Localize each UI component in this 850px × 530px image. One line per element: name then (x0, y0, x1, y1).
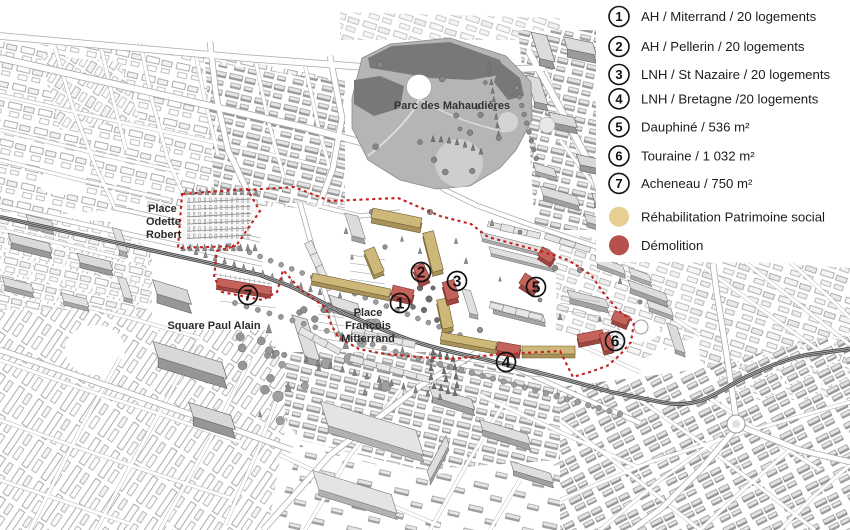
svg-text:Acheneau / 750 m²: Acheneau / 750 m² (641, 176, 753, 191)
svg-text:Odette: Odette (146, 216, 181, 228)
svg-text:5: 5 (615, 119, 622, 134)
svg-text:1: 1 (396, 296, 405, 313)
svg-text:2: 2 (417, 265, 426, 282)
svg-text:Robert: Robert (146, 229, 182, 241)
svg-text:1: 1 (615, 9, 622, 24)
svg-text:LNH / St Nazaire / 20 logement: LNH / St Nazaire / 20 logements (641, 67, 831, 82)
svg-text:AH / Pellerin / 20 logements: AH / Pellerin / 20 logements (641, 39, 805, 54)
svg-text:Réhabilitation Patrimoine soci: Réhabilitation Patrimoine social (641, 209, 825, 224)
svg-text:4: 4 (502, 355, 511, 372)
svg-text:7: 7 (615, 176, 622, 191)
svg-text:AH / Miterrand / 20 logements: AH / Miterrand / 20 logements (641, 9, 817, 24)
svg-text:3: 3 (615, 67, 622, 82)
svg-text:Dauphiné / 536 m²: Dauphiné / 536 m² (641, 119, 750, 134)
svg-text:5: 5 (532, 280, 541, 297)
svg-text:Touraine / 1 032 m²: Touraine / 1 032 m² (641, 149, 755, 164)
svg-text:6: 6 (611, 334, 620, 351)
svg-text:Square Paul Alain: Square Paul Alain (167, 320, 260, 332)
svg-text:Parc des Mahaudières: Parc des Mahaudières (394, 100, 510, 112)
svg-text:Place: Place (354, 307, 383, 319)
svg-text:LNH / Bretagne /20 logements: LNH / Bretagne /20 logements (641, 91, 819, 106)
svg-text:2: 2 (615, 39, 622, 54)
svg-text:6: 6 (615, 149, 622, 164)
svg-text:4: 4 (615, 91, 623, 106)
svg-text:François: François (345, 320, 391, 332)
svg-text:Mitterrand: Mitterrand (341, 333, 395, 345)
svg-text:3: 3 (453, 274, 462, 291)
svg-text:Place: Place (148, 203, 177, 215)
svg-text:Démolition: Démolition (641, 238, 703, 253)
svg-text:7: 7 (244, 288, 253, 305)
